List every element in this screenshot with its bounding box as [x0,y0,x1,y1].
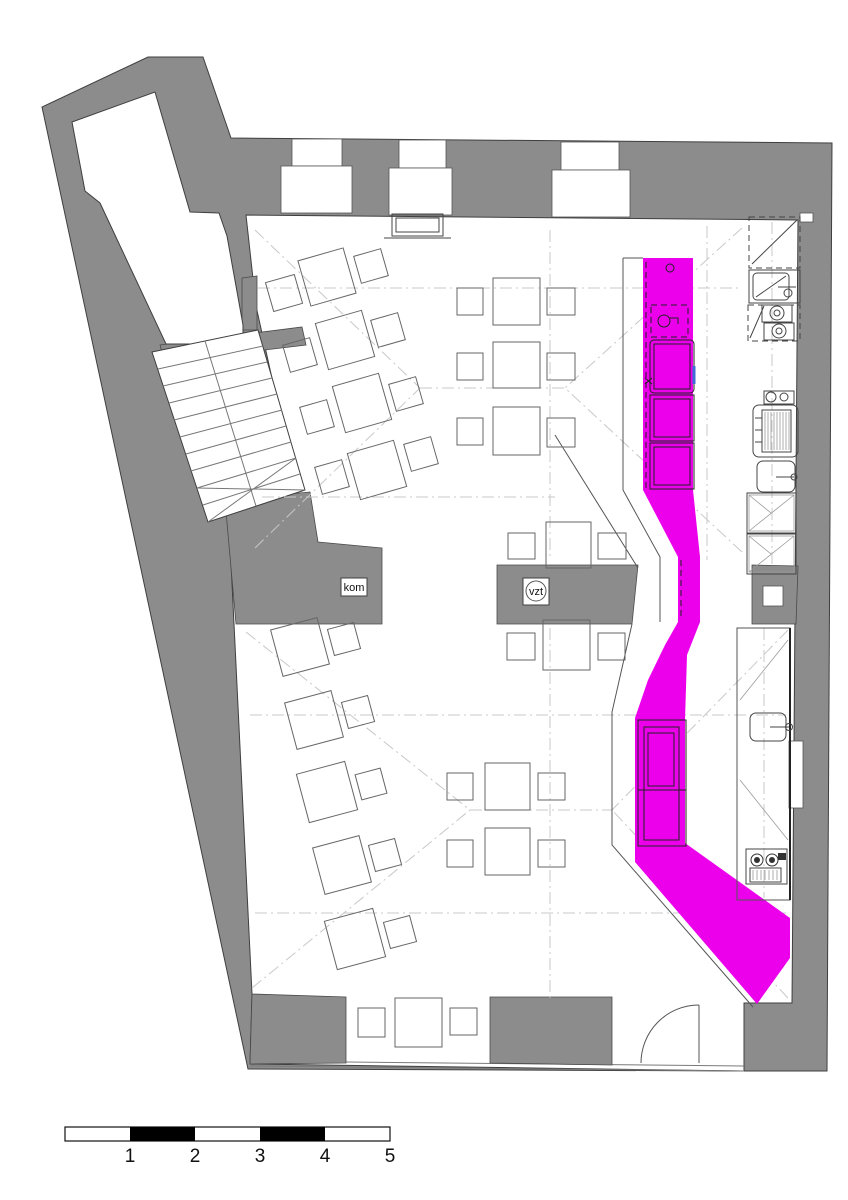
ventilation-label-text: vzt [529,586,543,598]
scale-bar-segment-black-2 [260,1127,325,1141]
scale-label-4: 4 [320,1146,331,1167]
coffee-machine-dial-1-center [754,857,760,863]
chimney-label: kom [341,578,367,596]
right-wall-niche [789,741,803,808]
coffee-machine-dial-2-center [769,857,775,863]
floor-plan-page: kom vzt 1 2 3 4 5 [0,0,848,1200]
divider-hatch [763,586,783,606]
bottom-left-wall-chunk [250,994,346,1064]
scale-label-3: 3 [255,1146,266,1167]
floor-plan-drawing: kom vzt 1 2 3 4 5 [0,0,848,1200]
bottom-middle-wall-chunk [490,997,612,1065]
window-3-reveal [552,170,630,217]
wall-recess [800,213,813,222]
scale-bar: 1 2 3 4 5 [65,1127,395,1167]
scale-label-2: 2 [190,1146,201,1167]
scale-bar-segment-black-1 [130,1127,195,1141]
ventilation-label: vzt [523,578,549,605]
central-pillar [497,565,638,624]
scale-label-5: 5 [385,1146,396,1167]
window-1-outer [292,139,342,166]
stair-side-pier [242,276,257,330]
window-1-reveal [281,166,352,213]
window-3-outer [561,142,619,170]
scale-bar-frame [65,1127,390,1141]
window-2-reveal [389,168,452,215]
window-2-outer [399,140,446,168]
coffee-machine-grill [753,870,777,880]
coffee-machine-switch [778,853,786,860]
chimney-label-text: kom [344,582,365,594]
scale-label-1: 1 [125,1146,136,1167]
